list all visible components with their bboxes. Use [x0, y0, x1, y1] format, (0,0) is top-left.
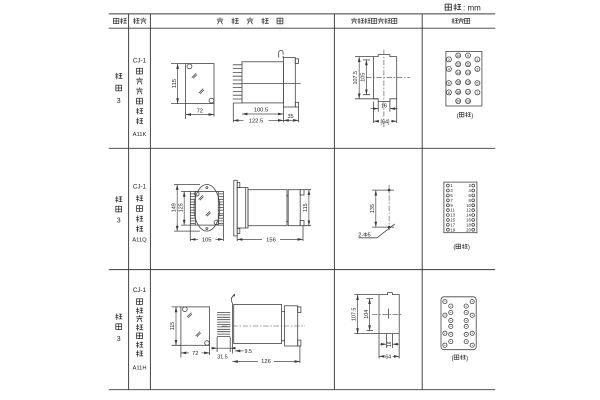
- svg-text:A11K: A11K: [133, 132, 147, 138]
- svg-text:72: 72: [192, 351, 198, 357]
- svg-text:122.5: 122.5: [249, 119, 264, 125]
- svg-text:20: 20: [456, 100, 460, 104]
- svg-text:135: 135: [370, 204, 376, 213]
- svg-text:(: (: [457, 113, 459, 119]
- svg-text:17: 17: [466, 90, 470, 94]
- svg-text:100.5: 100.5: [254, 108, 269, 114]
- svg-text:5: 5: [476, 82, 478, 86]
- svg-text:1: 1: [476, 58, 478, 62]
- svg-text:14: 14: [456, 71, 460, 75]
- svg-text:107.5: 107.5: [352, 308, 358, 322]
- svg-text:149: 149: [171, 203, 177, 212]
- svg-text:35: 35: [287, 114, 293, 120]
- svg-text:115: 115: [170, 322, 176, 331]
- svg-text:72: 72: [197, 109, 203, 115]
- svg-text:CJ-1: CJ-1: [133, 287, 147, 294]
- svg-text:): ): [471, 113, 473, 119]
- svg-text:19: 19: [466, 100, 470, 104]
- svg-text:6: 6: [448, 82, 450, 86]
- svg-text:3: 3: [117, 336, 121, 343]
- svg-text:126: 126: [261, 359, 271, 365]
- svg-text:11: 11: [466, 63, 470, 67]
- svg-text:16: 16: [387, 341, 393, 347]
- svg-text:105: 105: [361, 73, 367, 82]
- svg-text:8: 8: [448, 91, 450, 95]
- svg-text:20: 20: [466, 227, 471, 232]
- svg-text:(: (: [452, 356, 454, 362]
- svg-text:105: 105: [202, 238, 212, 244]
- svg-text:10: 10: [456, 54, 460, 58]
- svg-text:15: 15: [466, 81, 470, 85]
- svg-text:3: 3: [117, 98, 121, 105]
- svg-text:3: 3: [476, 67, 478, 71]
- svg-text:107.5: 107.5: [353, 71, 359, 85]
- svg-text:): ): [466, 356, 468, 362]
- svg-text:3: 3: [117, 217, 121, 224]
- svg-text:9: 9: [467, 54, 469, 58]
- svg-text:104: 104: [364, 310, 370, 319]
- svg-text:4: 4: [448, 67, 450, 71]
- svg-text:CJ-1: CJ-1: [133, 58, 147, 65]
- svg-text:115: 115: [303, 203, 309, 212]
- svg-text:(: (: [453, 245, 455, 251]
- svg-text:9.5: 9.5: [245, 349, 253, 355]
- svg-text:19: 19: [450, 227, 455, 232]
- svg-text:2: 2: [448, 58, 450, 62]
- svg-text:16: 16: [456, 81, 460, 85]
- svg-text:: mm: : mm: [463, 4, 481, 13]
- svg-text:[64]: [64]: [381, 119, 390, 125]
- svg-text:A11H: A11H: [132, 366, 146, 372]
- svg-text:115: 115: [172, 79, 178, 88]
- svg-text:18: 18: [456, 90, 460, 94]
- svg-text:16: 16: [381, 103, 387, 109]
- svg-text:13: 13: [466, 71, 470, 75]
- svg-text:31.5: 31.5: [217, 355, 228, 361]
- svg-text:64: 64: [385, 355, 391, 361]
- svg-text:CJ-1: CJ-1: [133, 183, 147, 190]
- svg-text:12: 12: [456, 63, 460, 67]
- svg-text:): ): [468, 245, 470, 251]
- svg-text:A11Q: A11Q: [132, 238, 147, 244]
- svg-text:156: 156: [266, 238, 276, 244]
- svg-text:125: 125: [178, 203, 184, 212]
- svg-text:7: 7: [476, 91, 478, 95]
